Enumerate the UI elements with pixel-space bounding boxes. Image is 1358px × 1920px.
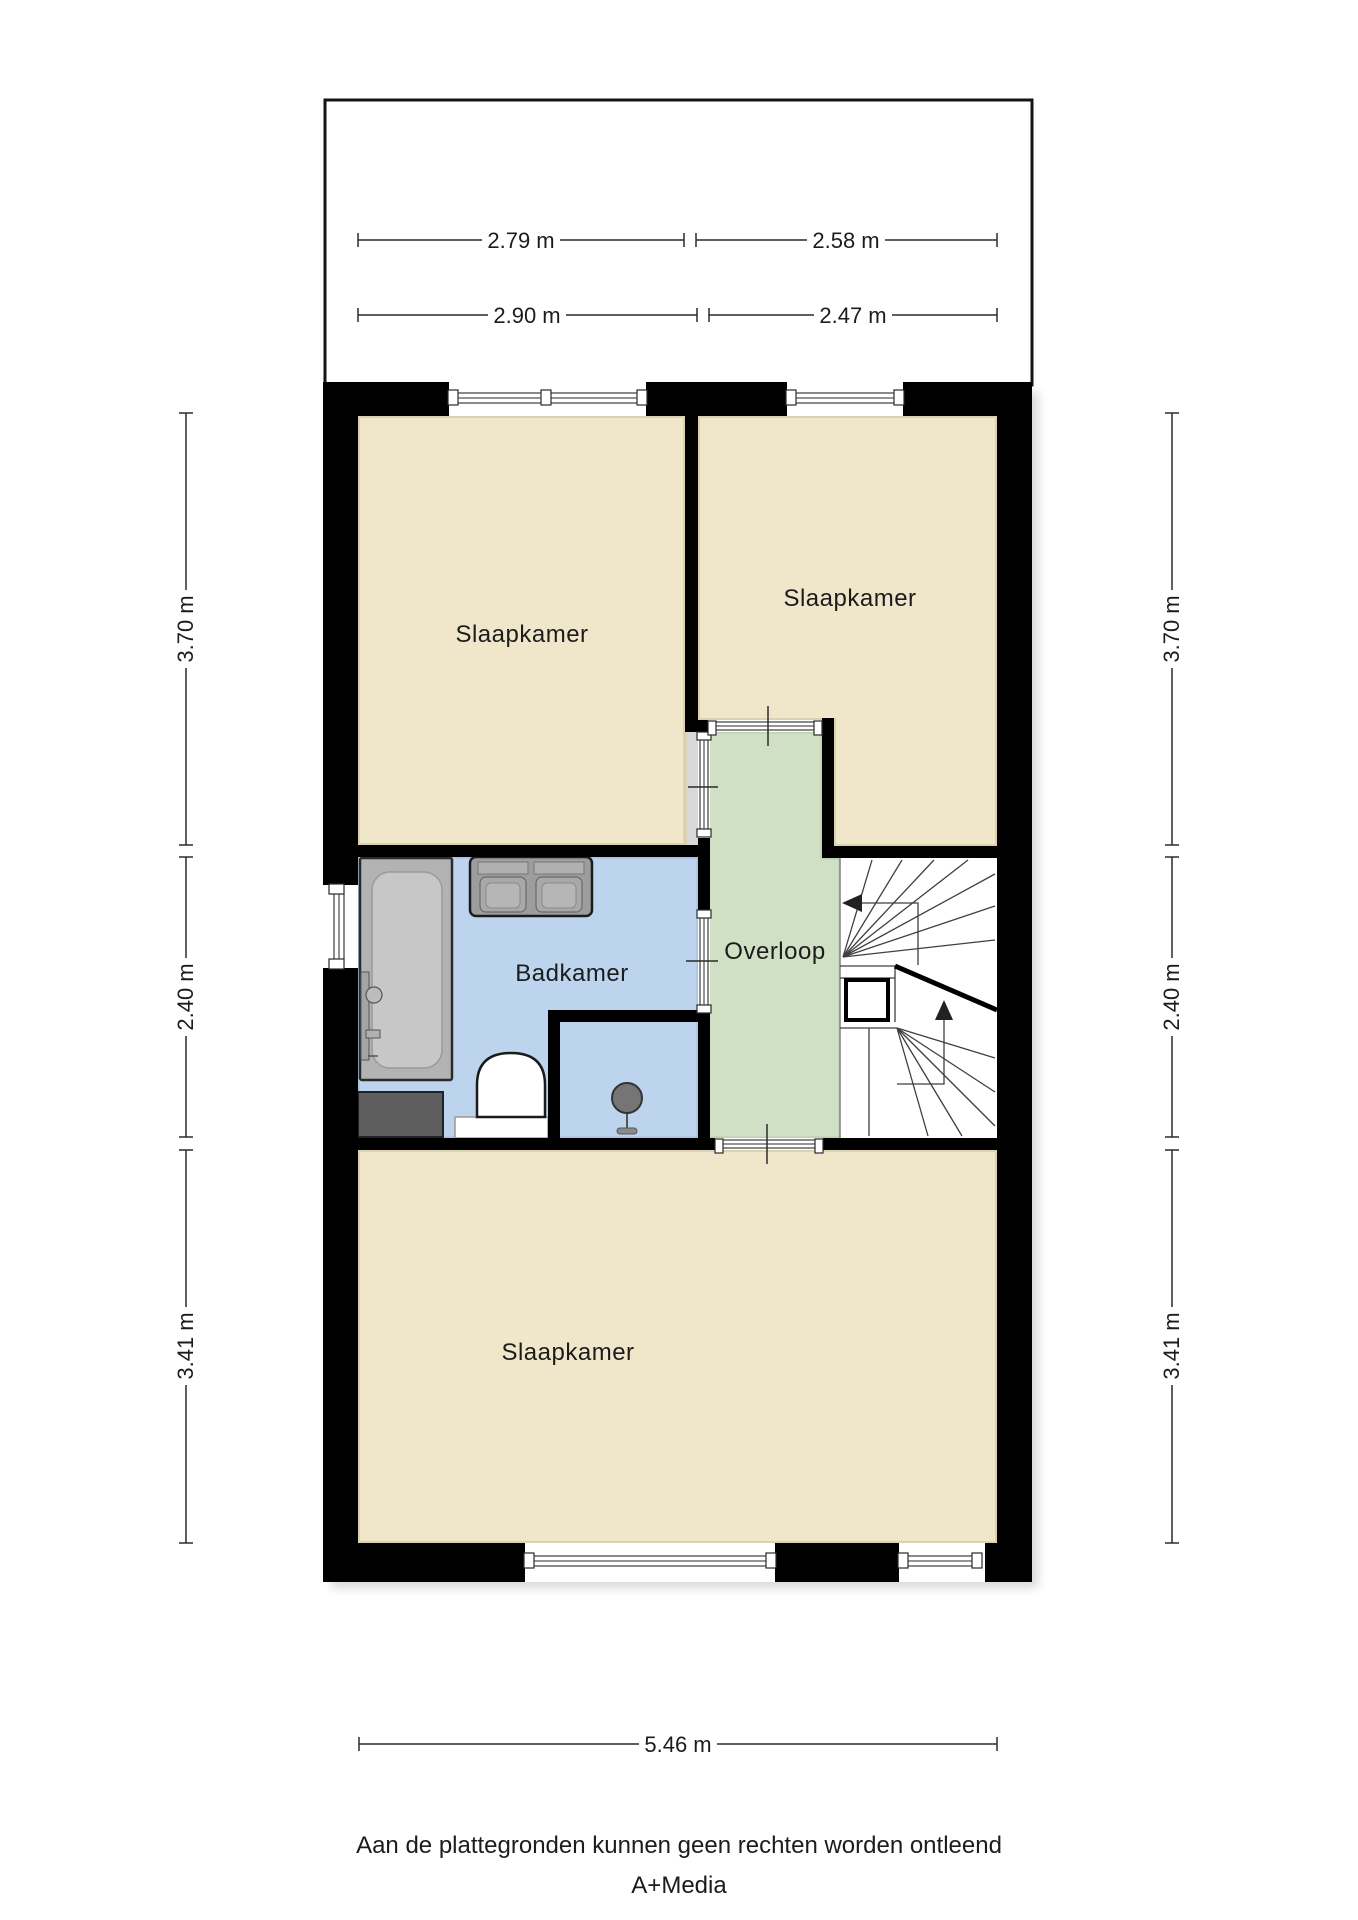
- wall-interior: [685, 416, 698, 723]
- dim-label-right-3: 3.41 m: [1159, 1312, 1184, 1379]
- wall-right: [997, 382, 1032, 1582]
- wall-interior: [548, 1010, 560, 1138]
- wall-left: [323, 968, 358, 1582]
- label-overloop: Overloop: [724, 938, 825, 965]
- dim-label-right-1: 3.70 m: [1159, 595, 1184, 662]
- floorplan-drawing: 2.79 m 2.58 m 2.90 m 2.47 m: [0, 0, 1358, 1920]
- dim-label-total-width: 5.46 m: [644, 1732, 711, 1757]
- wall-interior: [548, 1010, 698, 1022]
- wall-interior: [358, 1138, 715, 1150]
- label-slaapkamer-top-right: Slaapkamer: [783, 585, 916, 612]
- wall-bottom: [775, 1543, 899, 1582]
- dim-bottom-total: 5.46 m: [359, 1731, 997, 1757]
- window-top-right: [786, 382, 904, 416]
- window-top-left: [448, 382, 647, 416]
- dim-label-attic-1: 2.79 m: [487, 228, 554, 253]
- wall-interior: [358, 845, 698, 857]
- dim-label-right-2: 2.40 m: [1159, 963, 1184, 1030]
- label-slaapkamer-top-left: Slaapkamer: [455, 621, 588, 648]
- bathtub: [360, 858, 452, 1080]
- dim-label-attic-2: 2.58 m: [812, 228, 879, 253]
- wall-interior: [834, 846, 997, 858]
- wall-interior: [823, 1138, 997, 1150]
- room-slaapkamer-bottom: [358, 1150, 997, 1543]
- duct-box: [846, 980, 888, 1020]
- footer-disclaimer: Aan de plattegronden kunnen geen rechten…: [356, 1832, 1002, 1859]
- wall-left: [323, 382, 358, 885]
- dim-label-floor-1: 2.90 m: [493, 303, 560, 328]
- room-overloop: [708, 732, 840, 1138]
- dim-left-column: 3.70 m 2.40 m 3.41 m: [173, 413, 199, 1543]
- closet-block: [358, 1092, 443, 1137]
- wall-interior: [698, 838, 710, 910]
- window-bottom-right: [898, 1543, 985, 1582]
- wall-interior: [685, 720, 710, 732]
- window-left: [323, 884, 358, 969]
- window-bottom-left: [524, 1543, 776, 1582]
- label-badkamer: Badkamer: [515, 960, 628, 987]
- label-slaapkamer-bottom: Slaapkamer: [501, 1339, 634, 1366]
- footer: Aan de plattegronden kunnen geen rechten…: [356, 1832, 1002, 1899]
- wall-top: [646, 382, 787, 416]
- footer-brand: A+Media: [631, 1872, 727, 1899]
- dim-label-floor-2: 2.47 m: [819, 303, 886, 328]
- wall-interior: [822, 718, 834, 858]
- toilet-bowl: [477, 1053, 545, 1117]
- attic-outline: [325, 100, 1032, 385]
- wall-interior: [698, 1013, 710, 1150]
- dim-label-left-2: 2.40 m: [173, 963, 198, 1030]
- dim-right-column: 3.70 m 2.40 m 3.41 m: [1159, 413, 1185, 1543]
- double-sink-vanity: [470, 857, 592, 916]
- dim-label-left-3: 3.41 m: [173, 1312, 198, 1379]
- dim-label-left-1: 3.70 m: [173, 595, 198, 662]
- floorplan-page: 2.79 m 2.58 m 2.90 m 2.47 m: [0, 0, 1358, 1920]
